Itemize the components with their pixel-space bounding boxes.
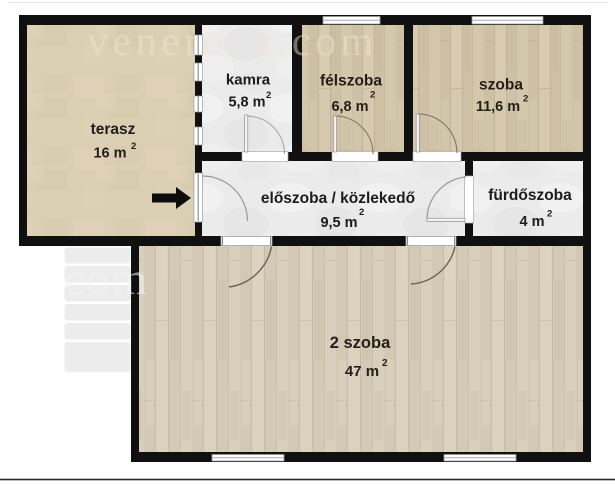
- svg-text:előszoba / közlekedő: előszoba / közlekedő: [261, 190, 415, 207]
- svg-text:kamra: kamra: [226, 72, 271, 89]
- svg-text:2: 2: [547, 209, 552, 220]
- svg-text:6,8 m: 6,8 m: [331, 99, 368, 115]
- svg-text:terasz: terasz: [91, 121, 136, 138]
- svg-text:16 m: 16 m: [93, 146, 126, 162]
- svg-text:2: 2: [359, 207, 364, 218]
- svg-text:szoba: szoba: [479, 77, 523, 94]
- svg-text:félszoba: félszoba: [320, 73, 382, 90]
- svg-text:2: 2: [266, 90, 271, 101]
- svg-text:2: 2: [370, 90, 375, 101]
- svg-text:47 m: 47 m: [345, 363, 379, 380]
- svg-text:5,8 m: 5,8 m: [228, 95, 265, 111]
- svg-text:2 szoba: 2 szoba: [330, 334, 391, 352]
- svg-text:9,5 m: 9,5 m: [320, 215, 357, 231]
- svg-text:4 m: 4 m: [520, 214, 545, 230]
- svg-text:2: 2: [382, 358, 388, 369]
- svg-text:11,6 m: 11,6 m: [476, 99, 520, 115]
- svg-text:2: 2: [523, 94, 528, 105]
- svg-text:2: 2: [131, 141, 136, 152]
- svg-text:fürdőszoba: fürdőszoba: [488, 187, 572, 204]
- svg-text:com: com: [64, 253, 149, 304]
- svg-text:venerova.com: venerova.com: [87, 19, 378, 65]
